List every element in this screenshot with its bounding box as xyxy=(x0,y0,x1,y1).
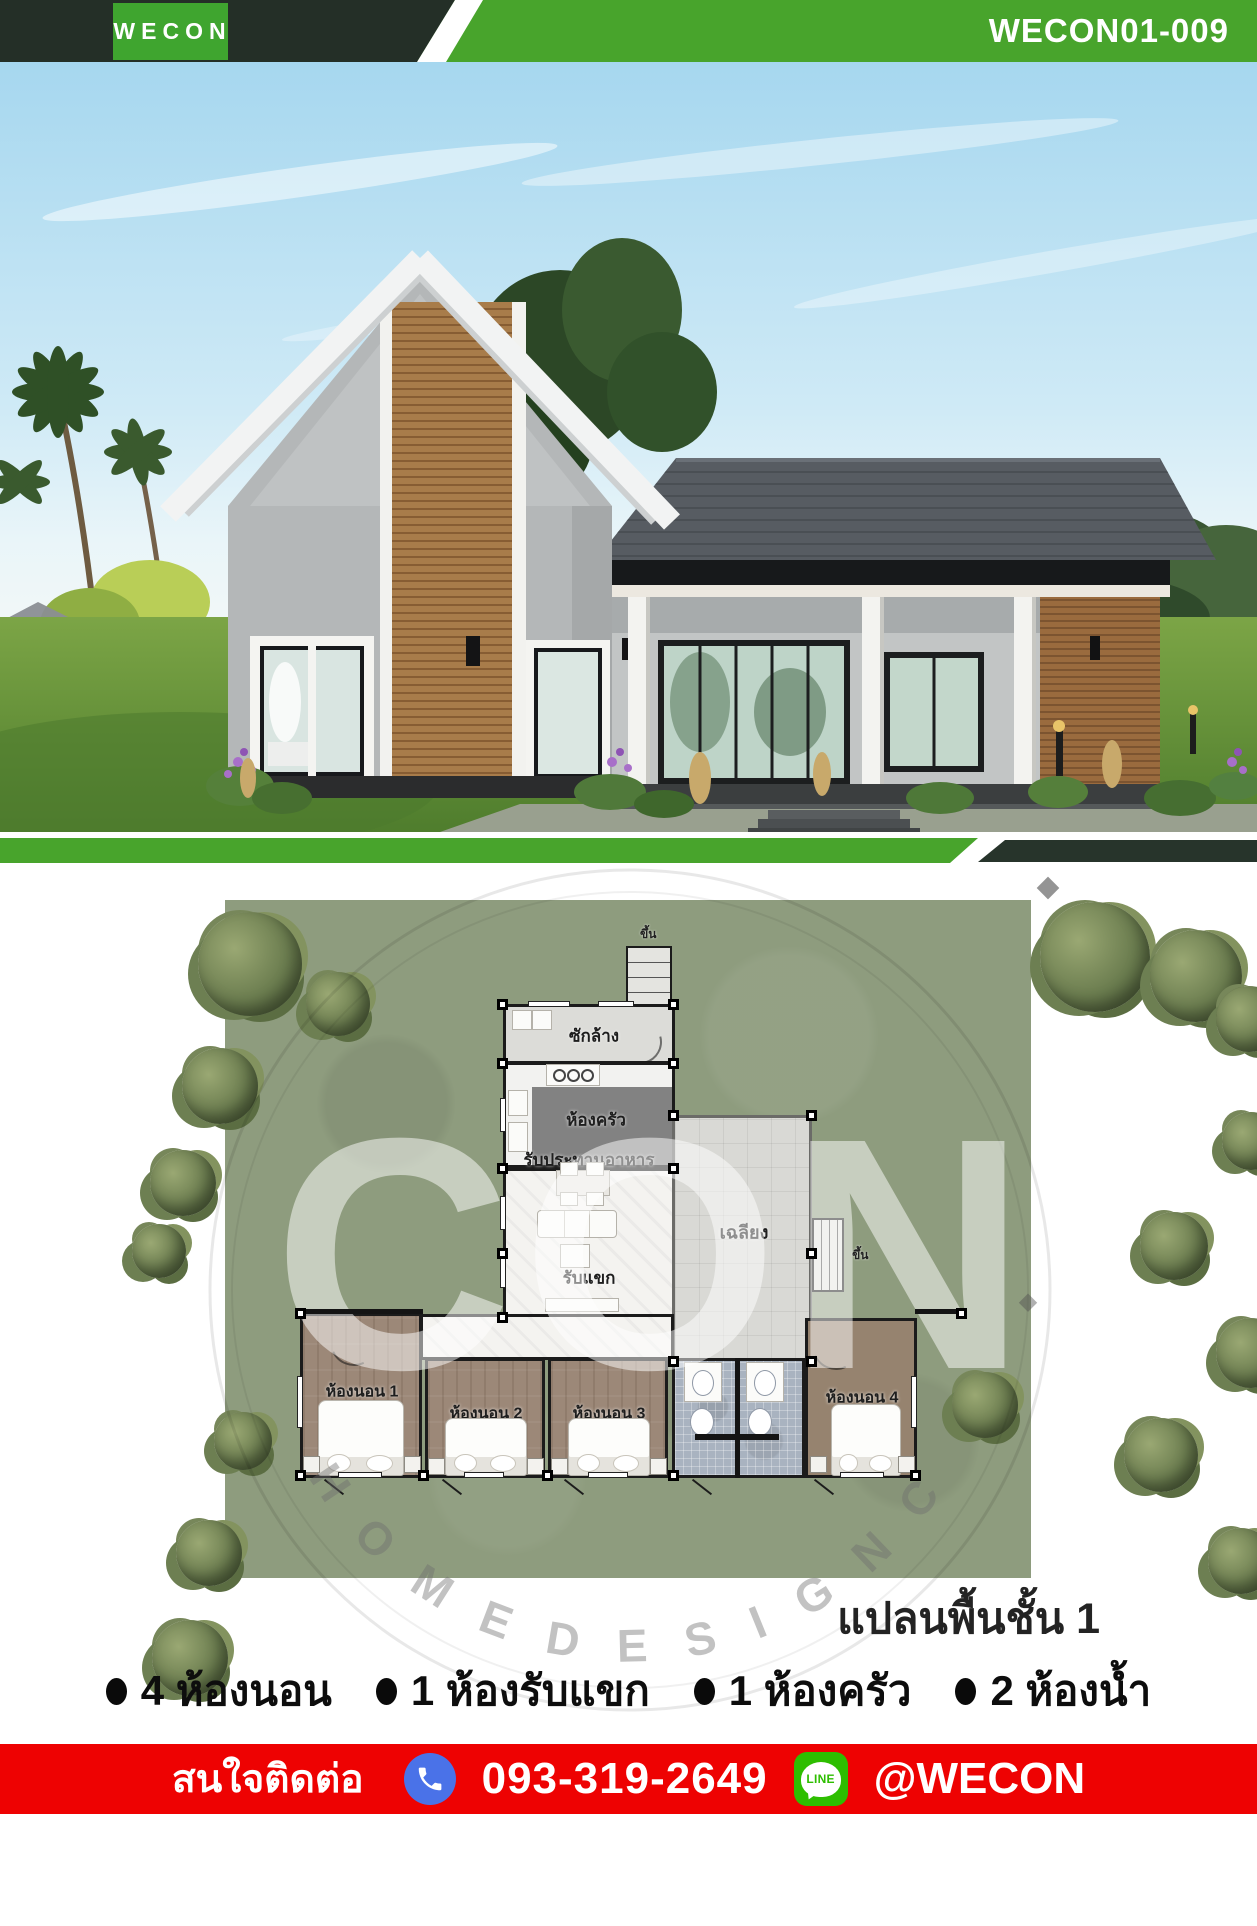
window xyxy=(528,1001,570,1007)
washer-icon xyxy=(532,1010,552,1030)
dining-chair-icon xyxy=(586,1162,604,1176)
plan-tree xyxy=(306,972,370,1036)
line-bubble-tail xyxy=(804,1790,817,1802)
window xyxy=(297,1376,303,1428)
wall-stub-west xyxy=(297,1309,423,1314)
stairs-up-label-top: ขึ้น xyxy=(640,925,656,944)
logo-text: WECON xyxy=(109,18,231,45)
room-label: ซักล้าง xyxy=(569,1023,619,1050)
window xyxy=(500,1098,506,1132)
dining-chair-icon xyxy=(560,1162,578,1176)
plan-tree xyxy=(150,1150,216,1216)
window xyxy=(840,1472,884,1478)
plan-title: แปลนพื้นชั้น 1 xyxy=(790,1584,1100,1652)
room-label: ห้องครัว xyxy=(566,1107,626,1134)
plan-tree xyxy=(1216,1318,1257,1388)
plan-tree xyxy=(1140,1212,1208,1280)
bed-icon xyxy=(568,1418,650,1476)
toilet-icon xyxy=(690,1408,714,1436)
stairs-up-label-side: ขึ้น xyxy=(852,1246,868,1265)
contact-phone-number: 093-319-2649 xyxy=(482,1754,768,1804)
nightstand xyxy=(551,1458,568,1475)
window xyxy=(598,1001,634,1007)
window xyxy=(500,1196,506,1230)
phone-icon xyxy=(404,1753,456,1805)
bullet-icon xyxy=(955,1678,976,1705)
basin-icon xyxy=(754,1370,776,1396)
feature-kitchen: 1 ห้องครัว xyxy=(694,1658,912,1724)
nightstand xyxy=(650,1458,667,1475)
room-label: เฉลียง xyxy=(720,1218,769,1247)
nightstand xyxy=(428,1458,445,1475)
contact-line-id: @WECON xyxy=(874,1754,1086,1804)
bathroom-divider-wall xyxy=(735,1358,740,1478)
basin-icon xyxy=(692,1370,714,1396)
line-icon: LINE xyxy=(794,1752,848,1806)
header-bar: WECON WECON01-009 xyxy=(0,0,1257,62)
plan-tree xyxy=(952,1372,1018,1438)
plan-tree xyxy=(176,1520,242,1586)
window xyxy=(464,1472,504,1478)
bullet-icon xyxy=(694,1678,715,1705)
project-code: WECON01-009 xyxy=(989,0,1229,62)
bullet-icon xyxy=(376,1678,397,1705)
feature-bathrooms: 2 ห้องน้ำ xyxy=(955,1658,1151,1724)
stairs-top xyxy=(626,946,672,1006)
plan-tree xyxy=(198,912,302,1016)
room-label: รับแขก xyxy=(563,1265,616,1292)
tv-console-icon xyxy=(545,1298,619,1312)
plan-tree xyxy=(1208,1528,1257,1594)
plan-tree xyxy=(1124,1418,1198,1492)
plan-tree xyxy=(1222,1112,1257,1170)
bathroom-stub-wall xyxy=(695,1434,779,1440)
window xyxy=(911,1376,917,1428)
feature-label: 2 ห้องน้ำ xyxy=(990,1658,1151,1724)
feature-label: 1 ห้องครัว xyxy=(729,1658,912,1724)
window xyxy=(588,1472,628,1478)
bed-icon xyxy=(318,1400,404,1476)
corridor xyxy=(420,1314,674,1360)
feature-label: 4 ห้องนอน xyxy=(141,1658,332,1724)
fridge-icon xyxy=(508,1090,528,1116)
plan-tree xyxy=(132,1224,186,1278)
plan-tree xyxy=(214,1412,272,1470)
contact-prompt: สนใจติดต่อ xyxy=(172,1748,364,1810)
toilet-icon xyxy=(748,1408,772,1436)
bullet-icon xyxy=(106,1678,127,1705)
bed-icon xyxy=(831,1404,901,1476)
stove-icon xyxy=(546,1064,600,1086)
washer-icon xyxy=(512,1010,532,1030)
house-render-photo xyxy=(0,62,1257,832)
flyer-page: WECON WECON01-009 xyxy=(0,0,1257,1926)
nightstand xyxy=(810,1456,827,1473)
plan-tree xyxy=(1040,902,1150,1012)
dining-chair-icon xyxy=(560,1192,578,1206)
contact-bar: สนใจติดต่อ 093-319-2649 LINE @WECON xyxy=(0,1744,1257,1814)
bed-icon xyxy=(445,1418,527,1476)
wecon-logo: WECON xyxy=(113,3,228,60)
dining-chair-icon xyxy=(586,1192,604,1206)
window xyxy=(500,1258,506,1288)
feature-bedrooms: 4 ห้องนอน xyxy=(106,1658,332,1724)
feature-list: 4 ห้องนอน 1 ห้องรับแขก 1 ห้องครัว 2 ห้อง… xyxy=(0,1658,1257,1724)
feature-label: 1 ห้องรับแขก xyxy=(411,1658,650,1724)
feature-living: 1 ห้องรับแขก xyxy=(376,1658,650,1724)
sofa-icon xyxy=(537,1210,617,1238)
window xyxy=(338,1472,382,1478)
plan-tree xyxy=(182,1048,258,1124)
